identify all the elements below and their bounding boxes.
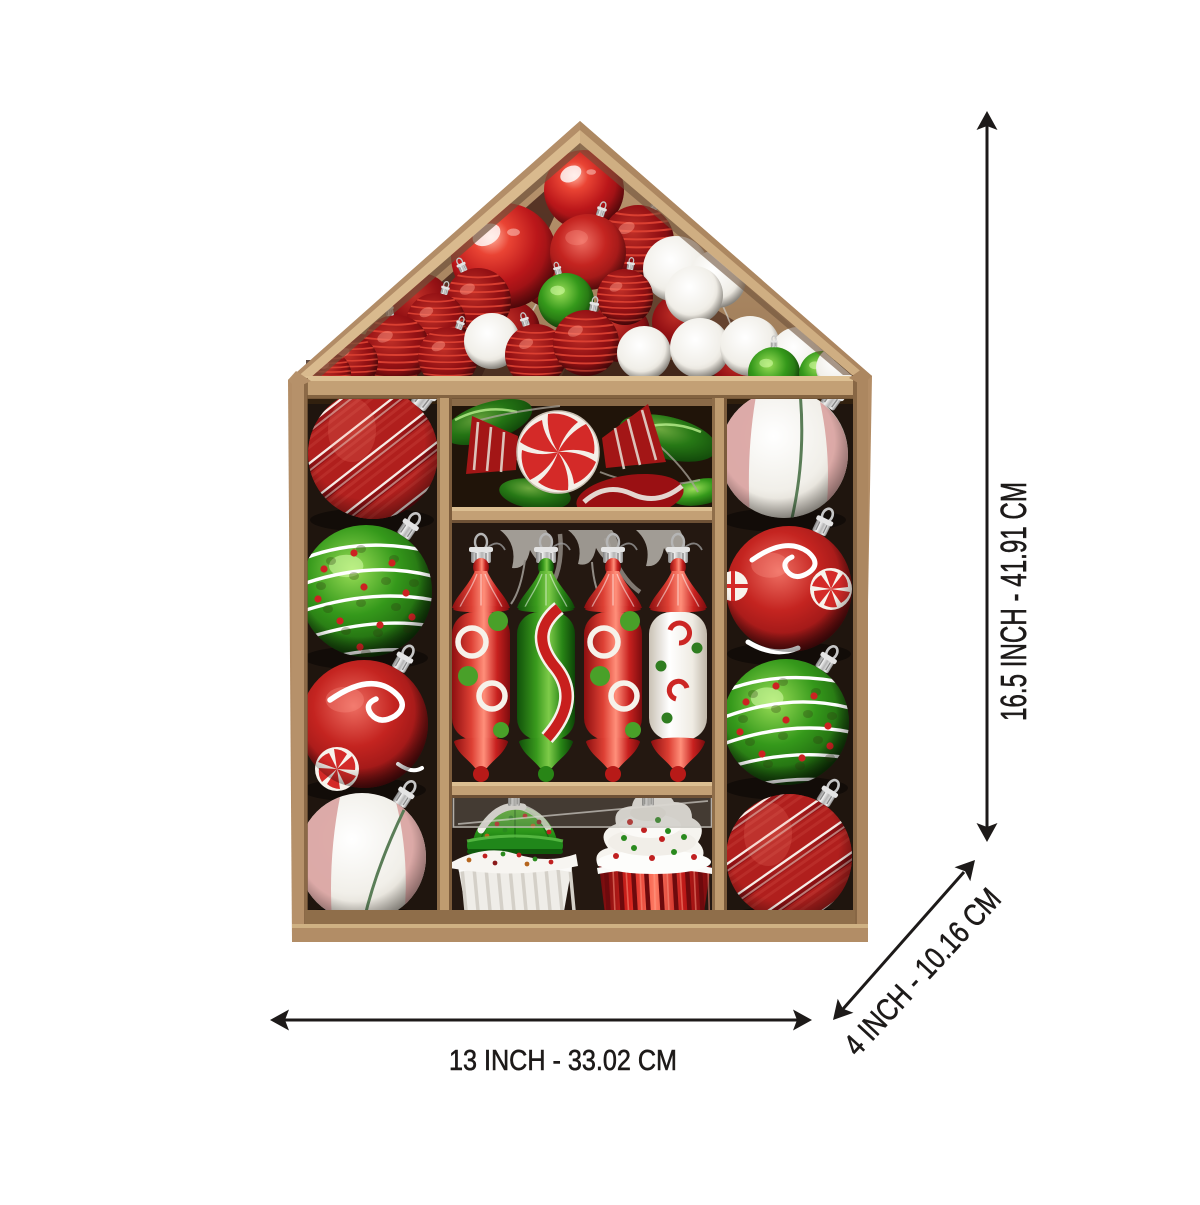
svg-text:16.5 INCH - 41.91 CM: 16.5 INCH - 41.91 CM — [993, 482, 1034, 721]
svg-text:13 INCH - 33.02 CM: 13 INCH - 33.02 CM — [449, 1045, 677, 1077]
